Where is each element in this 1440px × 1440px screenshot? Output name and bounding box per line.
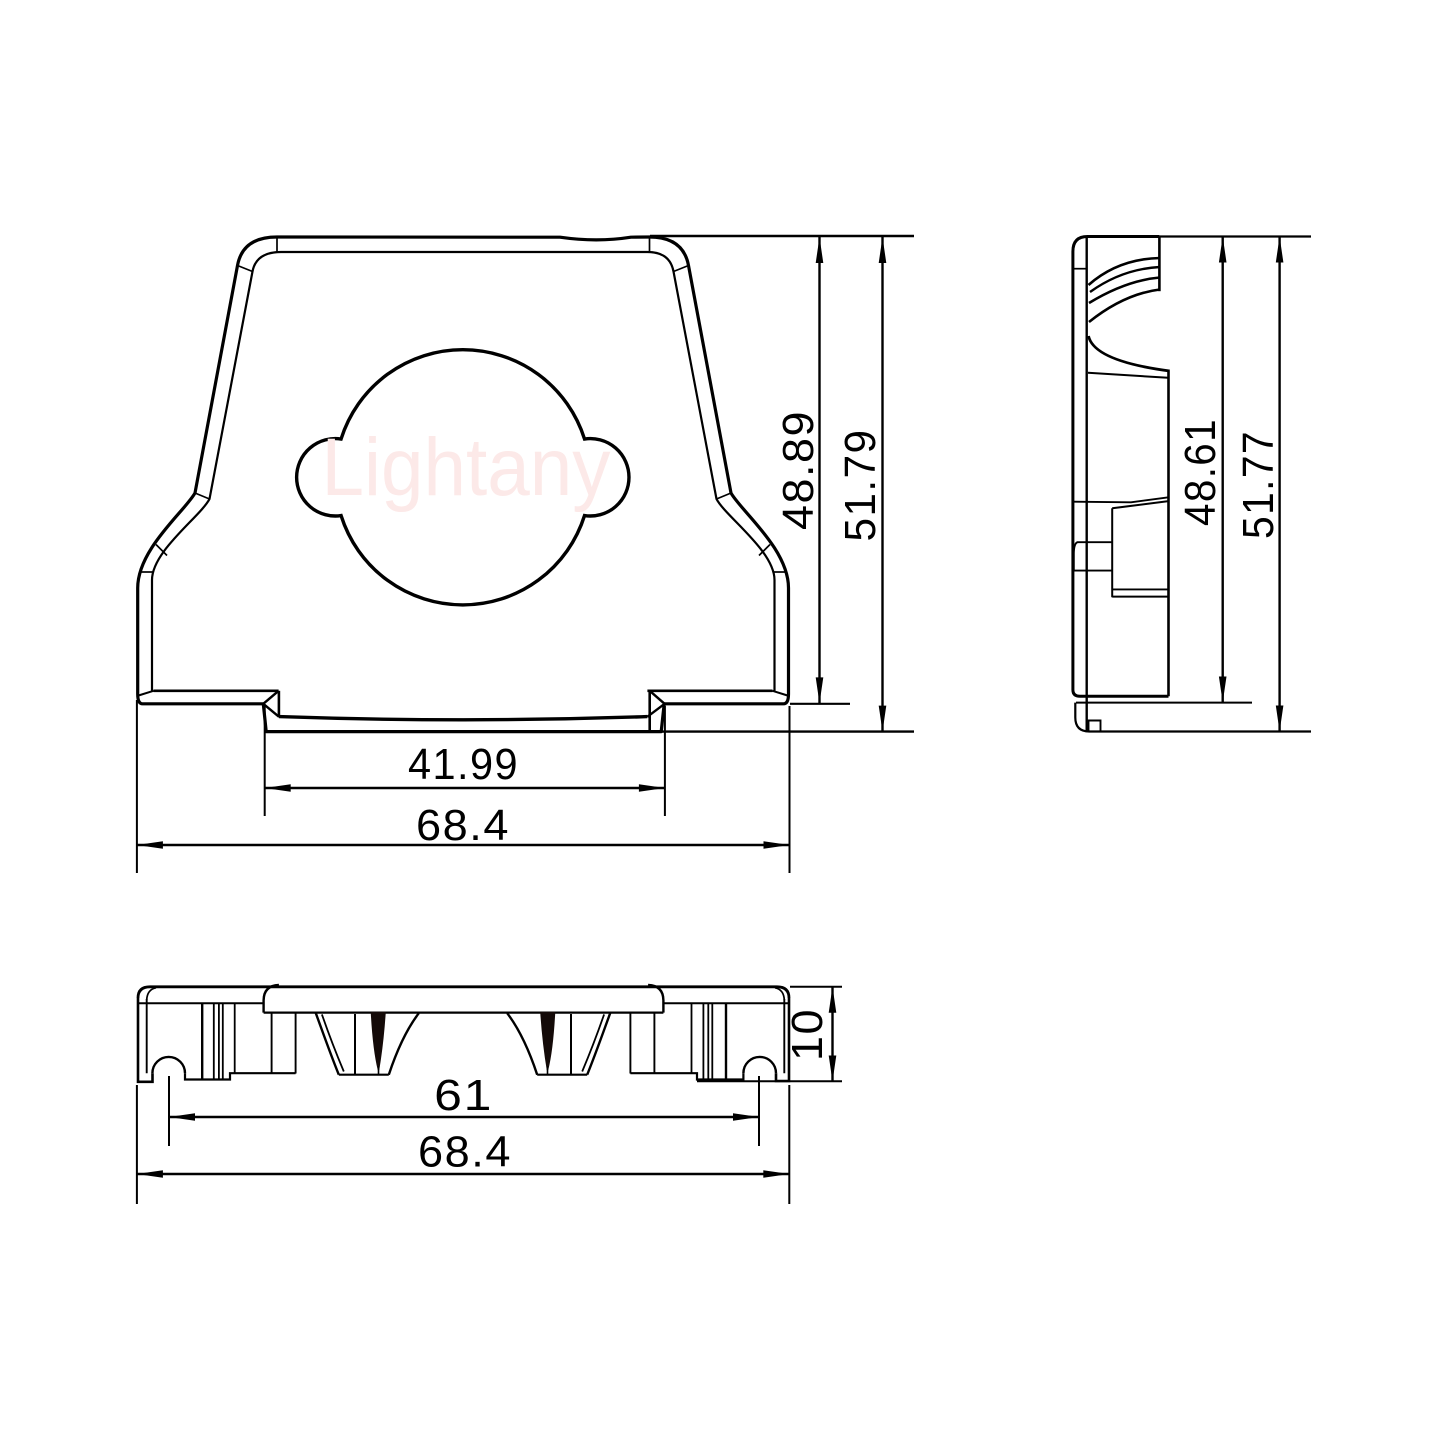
svg-text:61: 61 [434, 1072, 493, 1120]
svg-text:48.61: 48.61 [1177, 418, 1225, 526]
svg-text:41.99: 41.99 [408, 741, 519, 789]
svg-text:51.77: 51.77 [1235, 430, 1283, 539]
svg-text:Lightany: Lightany [322, 422, 611, 513]
svg-text:51.79: 51.79 [837, 429, 885, 542]
svg-text:68.4: 68.4 [416, 802, 510, 850]
svg-text:10: 10 [784, 1008, 832, 1061]
svg-text:48.89: 48.89 [775, 410, 823, 530]
svg-text:68.4: 68.4 [418, 1129, 512, 1177]
